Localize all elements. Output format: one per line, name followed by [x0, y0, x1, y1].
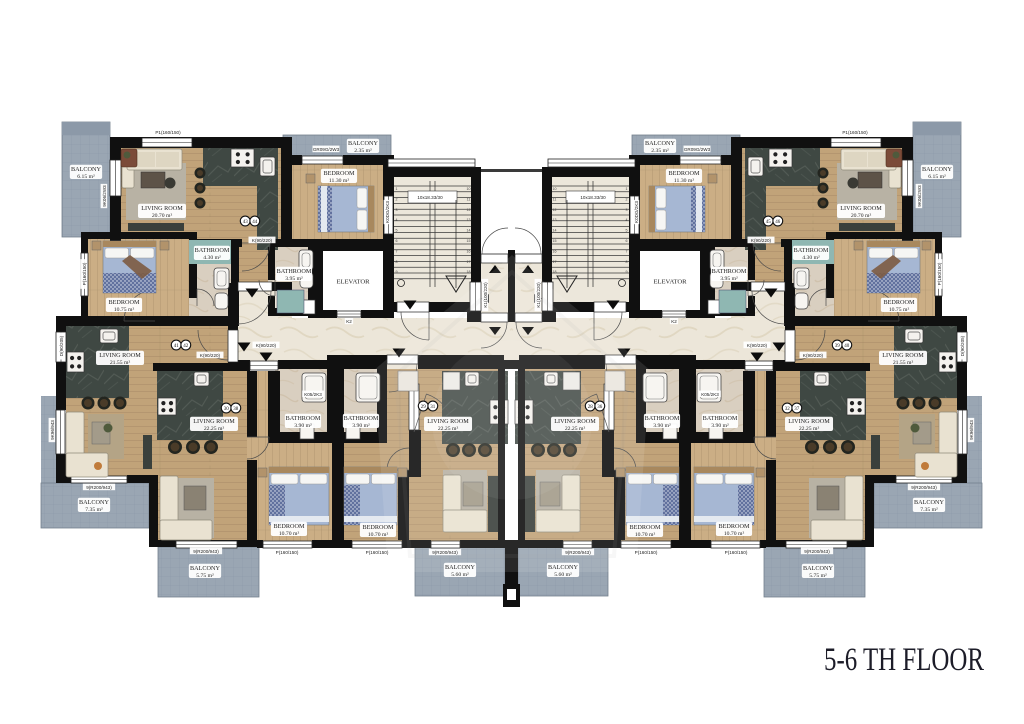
svg-text:3: 3	[626, 208, 628, 212]
svg-text:BALCONY: BALCONY	[803, 565, 833, 572]
svg-text:BEDROOM: BEDROOM	[363, 524, 394, 531]
svg-text:K0DG/2K3: K0DG/2K3	[385, 201, 390, 223]
svg-text:11.30 m²: 11.30 m²	[329, 178, 349, 184]
svg-text:6.15 m²: 6.15 m²	[928, 174, 946, 180]
svg-text:P(160/150): P(160/150)	[366, 550, 389, 555]
svg-text:BEDROOM: BEDROOM	[324, 170, 355, 177]
svg-text:11: 11	[553, 197, 557, 201]
svg-text:17: 17	[467, 260, 471, 264]
svg-text:BATHROOM: BATHROOM	[712, 268, 747, 275]
svg-text:21.55 m²: 21.55 m²	[110, 360, 131, 366]
svg-text:P(160/150): P(160/150)	[276, 550, 299, 555]
svg-text:K0DG/2K3: K0DG/2K3	[634, 201, 639, 223]
svg-text:7: 7	[626, 249, 628, 253]
svg-text:9K06/2W3: 9K06/2W3	[102, 185, 107, 207]
svg-text:BALCONY: BALCONY	[348, 140, 378, 147]
svg-text:K(90/220): K(90/220)	[751, 238, 772, 243]
svg-text:10.70 m²: 10.70 m²	[368, 532, 389, 538]
svg-text:ELEVATOR: ELEVATOR	[653, 279, 687, 286]
svg-text:P(160/150): P(160/150)	[82, 262, 87, 285]
svg-text:BATHROOM: BATHROOM	[645, 415, 680, 422]
svg-text:BALCONY: BALCONY	[922, 166, 952, 173]
svg-text:41: 41	[174, 344, 180, 349]
svg-text:15: 15	[467, 239, 471, 243]
svg-text:K(90/220): K(90/220)	[256, 343, 277, 348]
svg-text:31: 31	[430, 405, 436, 410]
svg-text:LIVING ROOM: LIVING ROOM	[427, 418, 469, 425]
svg-text:9(R200/943): 9(R200/943)	[911, 485, 937, 490]
svg-text:10x18.33/30: 10x18.33/30	[417, 195, 443, 200]
svg-text:5: 5	[626, 229, 628, 233]
svg-text:P(160/150): P(160/150)	[635, 550, 658, 555]
svg-text:22.25 m²: 22.25 m²	[565, 426, 586, 432]
svg-text:32: 32	[785, 407, 791, 412]
svg-text:LIVING ROOM: LIVING ROOM	[882, 352, 924, 359]
svg-text:K05/2K3: K05/2K3	[304, 392, 322, 397]
svg-text:BEDROOM: BEDROOM	[719, 523, 750, 530]
svg-text:K05/2K3: K05/2K3	[701, 392, 719, 397]
svg-text:9K06/2W3: 9K06/2W3	[917, 185, 922, 207]
svg-text:BALCONY: BALCONY	[79, 499, 109, 506]
svg-text:17: 17	[553, 260, 557, 264]
svg-text:K(90/220): K(90/220)	[747, 343, 768, 348]
svg-text:5: 5	[396, 229, 398, 233]
svg-text:9: 9	[396, 270, 398, 274]
svg-text:42: 42	[183, 344, 189, 349]
svg-text:BEDROOM: BEDROOM	[884, 299, 915, 306]
svg-text:BALCONY: BALCONY	[645, 140, 675, 147]
svg-text:K(90/220): K(90/220)	[803, 353, 824, 358]
svg-text:9(R200/943): 9(R200/943)	[432, 550, 458, 555]
svg-text:14: 14	[467, 229, 471, 233]
svg-text:LIVING ROOM: LIVING ROOM	[554, 418, 596, 425]
svg-text:2.35 m²: 2.35 m²	[651, 148, 669, 154]
svg-text:22.25 m²: 22.25 m²	[204, 426, 225, 432]
svg-text:K2: K2	[346, 319, 352, 324]
svg-text:K(90/220): K(90/220)	[252, 238, 273, 243]
svg-text:K2: K2	[671, 319, 677, 324]
svg-text:BALCONY: BALCONY	[548, 564, 578, 571]
svg-text:BALCONY: BALCONY	[190, 565, 220, 572]
svg-text:LIVING ROOM: LIVING ROOM	[193, 418, 235, 425]
svg-text:4.30 m²: 4.30 m²	[802, 255, 820, 261]
svg-text:ELEVATOR: ELEVATOR	[336, 279, 370, 286]
svg-text:9(R200/943): 9(R200/943)	[565, 550, 591, 555]
svg-text:10.70 m²: 10.70 m²	[279, 531, 300, 537]
svg-text:5.60 m²: 5.60 m²	[451, 572, 469, 578]
svg-text:BALCONY: BALCONY	[914, 499, 944, 506]
svg-text:44: 44	[252, 220, 258, 225]
svg-text:BALCONY: BALCONY	[445, 564, 475, 571]
svg-text:12: 12	[467, 208, 471, 212]
svg-text:5.60 m²: 5.60 m²	[554, 572, 572, 578]
svg-text:3.90 m²: 3.90 m²	[352, 423, 370, 429]
svg-text:11.30 m²: 11.30 m²	[674, 178, 694, 184]
svg-text:2: 2	[396, 197, 398, 201]
svg-text:9: 9	[626, 270, 628, 274]
svg-text:P(160/150): P(160/150)	[725, 550, 748, 555]
svg-text:22.25 m²: 22.25 m²	[438, 426, 459, 432]
svg-text:9(R200/943): 9(R200/943)	[86, 485, 112, 490]
svg-text:GR09G/2W3: GR09G/2W3	[313, 147, 340, 152]
svg-text:18: 18	[467, 270, 471, 274]
svg-text:D(90/205): D(90/205)	[59, 335, 64, 356]
svg-text:36: 36	[597, 405, 603, 410]
svg-text:BATHROOM: BATHROOM	[703, 415, 738, 422]
svg-text:BEDROOM: BEDROOM	[274, 523, 305, 530]
svg-text:5-6 TH FLOOR: 5-6 TH FLOOR	[824, 642, 984, 678]
svg-text:BATHROOM: BATHROOM	[277, 268, 312, 275]
svg-text:LIVING ROOM: LIVING ROOM	[788, 418, 830, 425]
svg-text:7.35 m²: 7.35 m²	[85, 507, 103, 513]
svg-text:8: 8	[396, 260, 398, 264]
svg-text:LIVING ROOM: LIVING ROOM	[840, 205, 882, 212]
svg-text:BEDROOM: BEDROOM	[669, 170, 700, 177]
svg-text:BATHROOM: BATHROOM	[344, 415, 379, 422]
svg-text:LIVING ROOM: LIVING ROOM	[99, 352, 141, 359]
svg-text:16: 16	[467, 249, 471, 253]
svg-text:9K96/943: 9K96/943	[50, 420, 55, 440]
svg-text:LIVING ROOM: LIVING ROOM	[141, 205, 183, 212]
svg-text:1: 1	[396, 187, 398, 191]
svg-text:9K96/943: 9K96/943	[969, 420, 974, 440]
svg-text:BATHROOM: BATHROOM	[195, 247, 230, 254]
svg-text:10.75 m²: 10.75 m²	[114, 307, 135, 313]
svg-text:45: 45	[766, 220, 772, 225]
svg-text:BALCONY: BALCONY	[71, 166, 101, 173]
svg-text:46: 46	[775, 220, 781, 225]
svg-text:10: 10	[553, 187, 557, 191]
svg-text:3.90 m²: 3.90 m²	[653, 423, 671, 429]
svg-text:13: 13	[467, 218, 471, 222]
svg-text:BATHROOM: BATHROOM	[794, 247, 829, 254]
svg-text:7.35 m²: 7.35 m²	[920, 507, 938, 513]
svg-text:18: 18	[553, 270, 557, 274]
svg-text:3: 3	[396, 208, 398, 212]
svg-text:28: 28	[588, 405, 594, 410]
svg-text:14: 14	[553, 229, 557, 233]
svg-text:P1(160/150): P1(160/150)	[842, 130, 868, 135]
svg-text:15: 15	[553, 239, 557, 243]
svg-text:P1(160/150): P1(160/150)	[155, 130, 181, 135]
svg-text:29: 29	[421, 405, 427, 410]
svg-text:6: 6	[626, 239, 628, 243]
svg-text:21.55 m²: 21.55 m²	[893, 360, 914, 366]
svg-text:4.30 m²: 4.30 m²	[203, 255, 221, 261]
svg-text:39: 39	[835, 344, 841, 349]
svg-text:9(R200/943): 9(R200/943)	[804, 549, 830, 554]
svg-text:30: 30	[224, 407, 230, 412]
svg-text:10.70 m²: 10.70 m²	[724, 531, 745, 537]
svg-text:10: 10	[467, 187, 471, 191]
svg-text:5.75 m²: 5.75 m²	[809, 573, 827, 579]
svg-text:6: 6	[396, 239, 398, 243]
svg-text:37: 37	[794, 407, 800, 412]
svg-text:BEDROOM: BEDROOM	[630, 524, 661, 531]
svg-text:38: 38	[233, 407, 239, 412]
svg-text:K1(100/220): K1(100/220)	[536, 282, 541, 308]
svg-text:D(90/205): D(90/205)	[960, 335, 965, 356]
svg-text:2: 2	[626, 197, 628, 201]
svg-text:13: 13	[553, 218, 557, 222]
svg-text:10.70 m²: 10.70 m²	[635, 532, 656, 538]
svg-text:4: 4	[626, 218, 628, 222]
svg-text:22.25 m²: 22.25 m²	[799, 426, 820, 432]
svg-text:2.35 m²: 2.35 m²	[354, 148, 372, 154]
svg-text:20.70 m²: 20.70 m²	[152, 213, 173, 219]
svg-text:3.95 m²: 3.95 m²	[720, 276, 738, 282]
svg-text:20.70 m²: 20.70 m²	[851, 213, 872, 219]
svg-text:5.75 m²: 5.75 m²	[196, 573, 214, 579]
svg-text:3.90 m²: 3.90 m²	[294, 423, 312, 429]
svg-text:GR09G/2W3: GR09G/2W3	[684, 147, 711, 152]
svg-text:8: 8	[626, 260, 628, 264]
svg-text:16: 16	[553, 249, 557, 253]
svg-text:11: 11	[467, 197, 471, 201]
svg-text:10x18.33/30: 10x18.33/30	[580, 195, 606, 200]
svg-text:BEDROOM: BEDROOM	[109, 299, 140, 306]
svg-text:3.95 m²: 3.95 m²	[285, 276, 303, 282]
svg-text:K(90/220): K(90/220)	[200, 353, 221, 358]
svg-text:3.90 m²: 3.90 m²	[711, 423, 729, 429]
svg-text:7: 7	[396, 249, 398, 253]
svg-text:1: 1	[626, 187, 628, 191]
svg-text:12: 12	[553, 208, 557, 212]
svg-text:10.75 m²: 10.75 m²	[889, 307, 910, 313]
svg-text:43: 43	[243, 220, 249, 225]
svg-text:K1(100/220): K1(100/220)	[483, 282, 488, 308]
svg-text:9(R200/943): 9(R200/943)	[193, 549, 219, 554]
svg-text:40: 40	[844, 344, 850, 349]
svg-text:6.15 m²: 6.15 m²	[77, 174, 95, 180]
svg-text:BATHROOM: BATHROOM	[286, 415, 321, 422]
svg-text:4: 4	[396, 218, 398, 222]
svg-text:P(160/150): P(160/150)	[937, 262, 942, 285]
